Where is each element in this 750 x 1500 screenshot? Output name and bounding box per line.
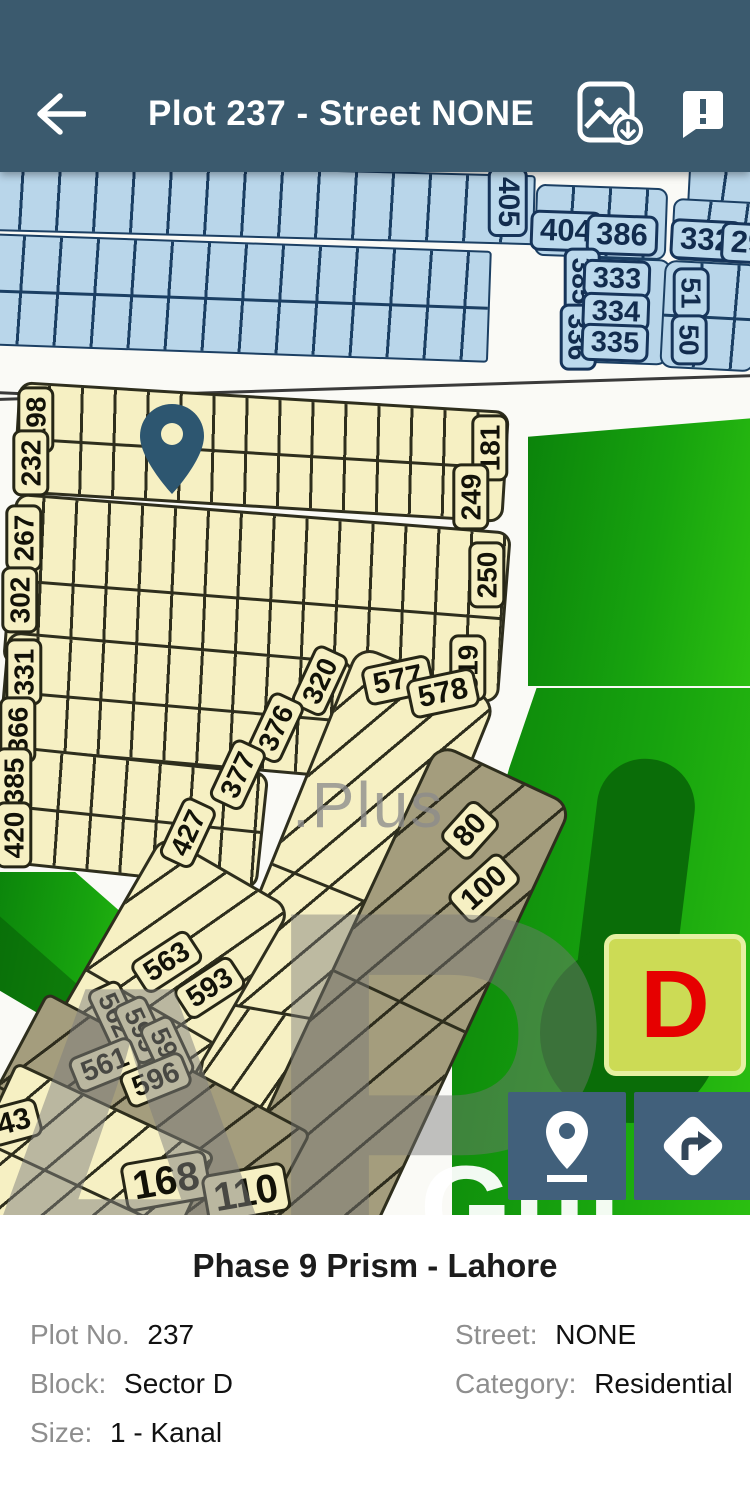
field-label: Size:: [30, 1417, 92, 1448]
plot-number-29[interactable]: 29: [720, 221, 750, 264]
back-arrow-icon[interactable]: [34, 92, 86, 136]
plot-number-232[interactable]: 232: [12, 430, 49, 497]
field-plot-no: Plot No. 237: [30, 1311, 455, 1359]
plot-number-249[interactable]: 249: [452, 464, 489, 531]
field-label: Street:: [455, 1319, 537, 1350]
plot-fields: Plot No. 237 Street: NONE Block: Sector …: [0, 1285, 750, 1457]
field-label: Block:: [30, 1368, 106, 1399]
field-block: Block: Sector D: [30, 1360, 455, 1408]
map-canvas[interactable]: A P .Plus Gul D 405404386332293853363333…: [0, 172, 750, 1215]
show-my-location-button[interactable]: [508, 1092, 626, 1200]
field-label: Plot No.: [30, 1319, 130, 1350]
plot-number-50[interactable]: 50: [670, 314, 707, 365]
field-label: Category:: [455, 1368, 576, 1399]
plot-band: [0, 233, 492, 363]
field-value: Sector D: [124, 1368, 233, 1399]
field-value: 1 - Kanal: [110, 1417, 222, 1448]
turn-right-sign-icon: [654, 1107, 732, 1185]
green-area: [528, 418, 750, 686]
plot-number-250[interactable]: 250: [468, 542, 505, 609]
field-category: Category: Residential: [455, 1360, 733, 1408]
field-value: NONE: [555, 1319, 636, 1350]
plot-number-51[interactable]: 51: [672, 267, 709, 318]
plot-number-405[interactable]: 405: [488, 172, 528, 237]
field-value: Residential: [594, 1368, 733, 1399]
selected-plot-pin-icon: [140, 404, 204, 494]
plot-band: [0, 172, 536, 245]
plot-number-335[interactable]: 335: [580, 323, 650, 364]
directions-button[interactable]: [634, 1092, 750, 1200]
feedback-icon[interactable]: [682, 90, 724, 138]
map-pin-icon: [538, 1109, 596, 1183]
appbar-actions: [576, 81, 724, 147]
app-bar: Plot 237 - Street NONE: [0, 0, 750, 172]
plot-number-331[interactable]: 331: [5, 639, 42, 706]
field-street: Street: NONE: [455, 1311, 733, 1359]
page-title: Plot 237 - Street NONE: [148, 94, 534, 134]
plot-number-420[interactable]: 420: [0, 802, 33, 869]
field-value: 237: [147, 1319, 194, 1350]
save-map-image-icon[interactable]: [576, 81, 646, 147]
pin-shape: [140, 404, 204, 494]
plot-number-302[interactable]: 302: [1, 567, 38, 634]
sector-badge: D: [604, 934, 746, 1076]
plot-number-267[interactable]: 267: [5, 505, 42, 572]
plot-details-panel: Phase 9 Prism - Lahore Plot No. 237 Stre…: [0, 1215, 750, 1500]
app-screen: Plot 237 - Street NONE A: [0, 0, 750, 1500]
field-size: Size: 1 - Kanal: [30, 1409, 455, 1457]
project-title: Phase 9 Prism - Lahore: [0, 1247, 750, 1285]
